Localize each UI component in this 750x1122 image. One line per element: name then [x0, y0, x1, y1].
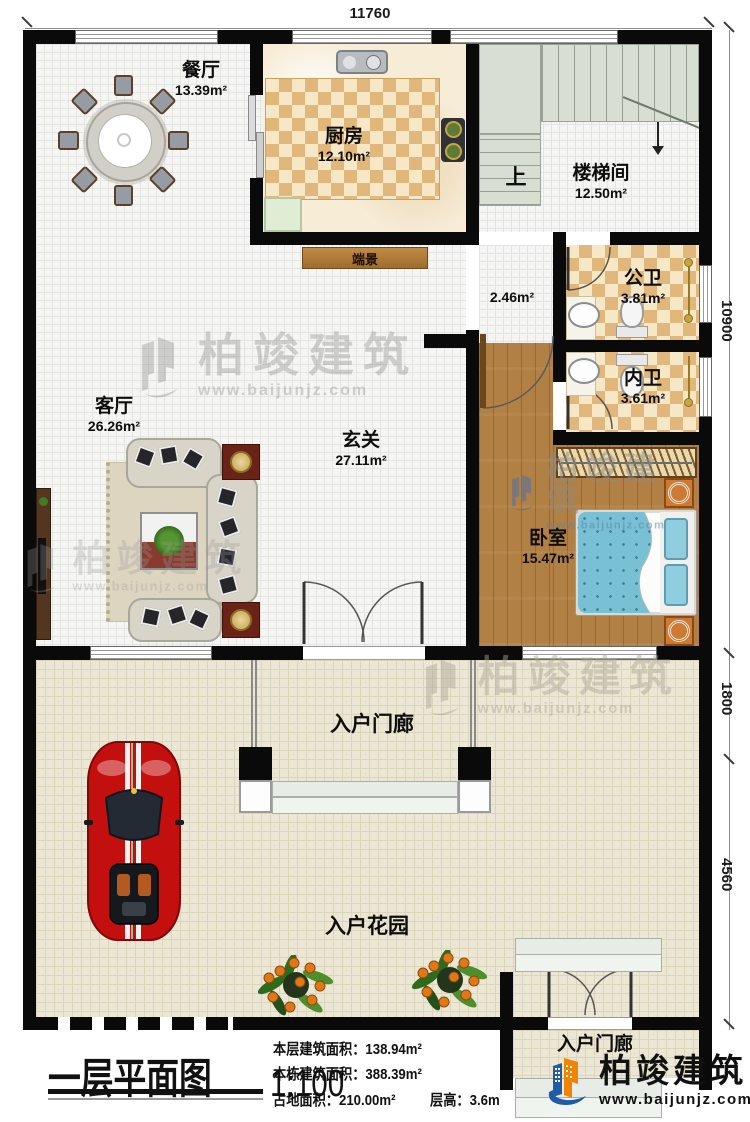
dimension-right-garden: 4560	[718, 858, 735, 891]
room-name: 卧室	[504, 528, 592, 550]
stair-up-label: 上	[500, 166, 532, 191]
dimension-line-top	[25, 28, 712, 29]
towel-bar	[688, 262, 690, 318]
dining-chair	[114, 185, 133, 206]
room-area: 27.11m²	[317, 452, 405, 469]
room-label-private-bath: 内卫 3.61m²	[599, 368, 687, 407]
nightstand-knob	[668, 620, 690, 642]
console-label: 端景	[352, 249, 378, 268]
stat-floor-area: 本层建筑面积：138.94m²	[273, 1038, 442, 1059]
room-area: 3.81m²	[599, 290, 687, 307]
porch-post-line	[470, 660, 476, 747]
dimension-top: 11760	[330, 5, 410, 22]
window-kitchen	[292, 30, 432, 44]
garden-label: 入户花园	[312, 915, 422, 940]
room-area: 12.50m²	[556, 185, 646, 202]
side-table	[222, 444, 260, 480]
brand-logo: 柏竣建筑 www.baijunjz.com	[545, 1054, 750, 1108]
porch-step	[272, 797, 458, 814]
wall-kitchen-stair	[466, 44, 479, 245]
entry-porch-step	[515, 938, 662, 955]
bedroom-door	[476, 330, 556, 416]
nightstand-knob	[668, 482, 690, 504]
garden-plant	[258, 955, 334, 1021]
kitchen-sliding-door	[256, 132, 264, 178]
porch-column-base	[239, 780, 272, 813]
sink-bowl	[343, 56, 356, 69]
sofa-pillow	[140, 606, 161, 627]
stair-flight-upper	[541, 44, 699, 122]
dimension-right-porch: 1800	[718, 682, 735, 715]
towel-bar	[688, 356, 690, 402]
sink-bowl	[366, 55, 381, 70]
wall-right	[699, 30, 712, 1090]
stat-land-area: 占地面积：210.00m² 层高：3.6m	[273, 1089, 510, 1110]
stat-text: 本栋建筑面积：388.39m²	[273, 1063, 422, 1084]
stat-building-area: 本栋建筑面积：388.39m²	[273, 1063, 442, 1084]
dimension-tick	[21, 16, 32, 27]
stair-arrow-head	[652, 146, 664, 155]
porch-column	[239, 747, 272, 780]
cabinet-plant	[39, 497, 48, 506]
kitchen-sink	[336, 50, 388, 74]
title-underline	[48, 1089, 263, 1094]
wall-bath-top	[610, 232, 712, 245]
room-name: 厨房	[299, 126, 389, 148]
foyer-door-sill	[303, 646, 425, 660]
console-table: 端景	[302, 247, 428, 269]
bathroom-sink	[568, 302, 600, 328]
bathroom-sink	[568, 358, 600, 384]
brand-name: 柏竣建筑	[599, 1054, 750, 1089]
room-name: 客厅	[69, 396, 159, 418]
garden-plant	[412, 950, 488, 1016]
wall-bath-divider	[553, 340, 699, 352]
wardrobe	[556, 447, 697, 478]
kitchen-sliding-door	[248, 95, 256, 141]
room-name: 内卫	[599, 368, 687, 390]
wall-entry-porch	[513, 1017, 548, 1030]
brand-site: www.baijunjz.com	[599, 1091, 750, 1108]
stair-arrow	[657, 122, 659, 148]
room-name: 楼梯间	[556, 163, 646, 185]
wall-left	[23, 30, 36, 1030]
porch-step	[272, 781, 458, 797]
table-lamp	[230, 451, 252, 473]
room-label-kitchen: 厨房 12.10m²	[299, 126, 389, 165]
stove-burner	[445, 143, 462, 160]
page-title: 一层平面图	[48, 1045, 212, 1106]
car	[84, 736, 184, 946]
dining-chair	[168, 131, 189, 150]
wall-entry-porch-left	[500, 972, 513, 1090]
toilet-tank	[616, 354, 648, 366]
dining-chair	[114, 75, 133, 96]
coffee-table-plant	[154, 526, 184, 556]
stove-burner	[445, 121, 462, 138]
window-stairwell	[450, 30, 618, 44]
room-label-bedroom: 卧室 15.47m²	[504, 528, 592, 567]
nightstand	[664, 478, 694, 508]
porch-column	[458, 747, 491, 780]
nightstand	[664, 616, 694, 646]
porch-label: 入户门廊	[317, 713, 427, 738]
foyer-double-door	[301, 568, 425, 648]
title-underline-thin	[48, 1098, 263, 1100]
wall-entry-porch	[632, 1017, 699, 1030]
room-label-dining: 餐厅 13.39m²	[149, 60, 253, 99]
stat-text: 占地面积：210.00m²	[273, 1089, 396, 1110]
table-lamp	[230, 609, 252, 631]
kitchen-cabinet	[264, 197, 302, 232]
window-living	[90, 646, 212, 660]
window-dining	[75, 30, 218, 44]
bed-pillow	[664, 518, 688, 560]
room-label-foyer: 玄关 27.11m²	[317, 430, 405, 469]
stair-landing	[479, 44, 541, 134]
stat-text: 层高：3.6m	[430, 1089, 500, 1110]
sofa-pillow	[159, 445, 180, 466]
room-name: 玄关	[317, 430, 405, 452]
sofa-pillow	[217, 547, 238, 568]
wall-garden-dashed	[36, 1017, 233, 1030]
wardrobe-rod	[561, 462, 692, 464]
room-label-stairwell: 楼梯间 12.50m²	[556, 163, 646, 202]
stat-text: 本层建筑面积：138.94m²	[273, 1038, 422, 1059]
wall-bath-top	[553, 232, 566, 245]
wall-foyer-stub	[424, 334, 479, 348]
wall-kitchen-bottom	[250, 232, 479, 245]
room-area: 26.26m²	[69, 418, 159, 435]
side-table	[222, 602, 260, 638]
room-name: 餐厅	[149, 60, 253, 82]
porch-column-base	[458, 780, 491, 813]
entry-porch-step	[515, 954, 662, 972]
floor-plan: 11760 10900 1800 4560	[0, 0, 750, 1122]
kitchen-stove	[441, 118, 465, 162]
porch-post-line	[251, 660, 257, 747]
wall-bath-bottom	[553, 432, 712, 445]
tv-screen	[38, 538, 46, 594]
brand-logo-icon	[545, 1054, 591, 1108]
window-private-bath	[699, 357, 712, 417]
room-name: 公卫	[599, 268, 687, 290]
bed-pillow	[664, 564, 688, 606]
room-label-living: 客厅 26.26m²	[69, 396, 159, 435]
room-area: 15.47m²	[504, 550, 592, 567]
window-bedroom	[522, 646, 657, 660]
towel-bar-knob	[684, 258, 693, 267]
dimension-tick	[703, 16, 714, 27]
room-area: 12.10m²	[299, 148, 389, 165]
room-label-public-bath: 公卫 3.81m²	[599, 268, 687, 307]
dining-table-center	[117, 133, 131, 147]
towel-bar-knob	[684, 314, 693, 323]
room-area: 13.39m²	[149, 82, 253, 99]
dining-chair	[58, 131, 79, 150]
window-public-bath	[699, 265, 712, 323]
hallway-area-label: 2.46m²	[480, 289, 544, 306]
dimension-right-total: 10900	[718, 300, 735, 342]
room-area: 3.61m²	[599, 390, 687, 407]
